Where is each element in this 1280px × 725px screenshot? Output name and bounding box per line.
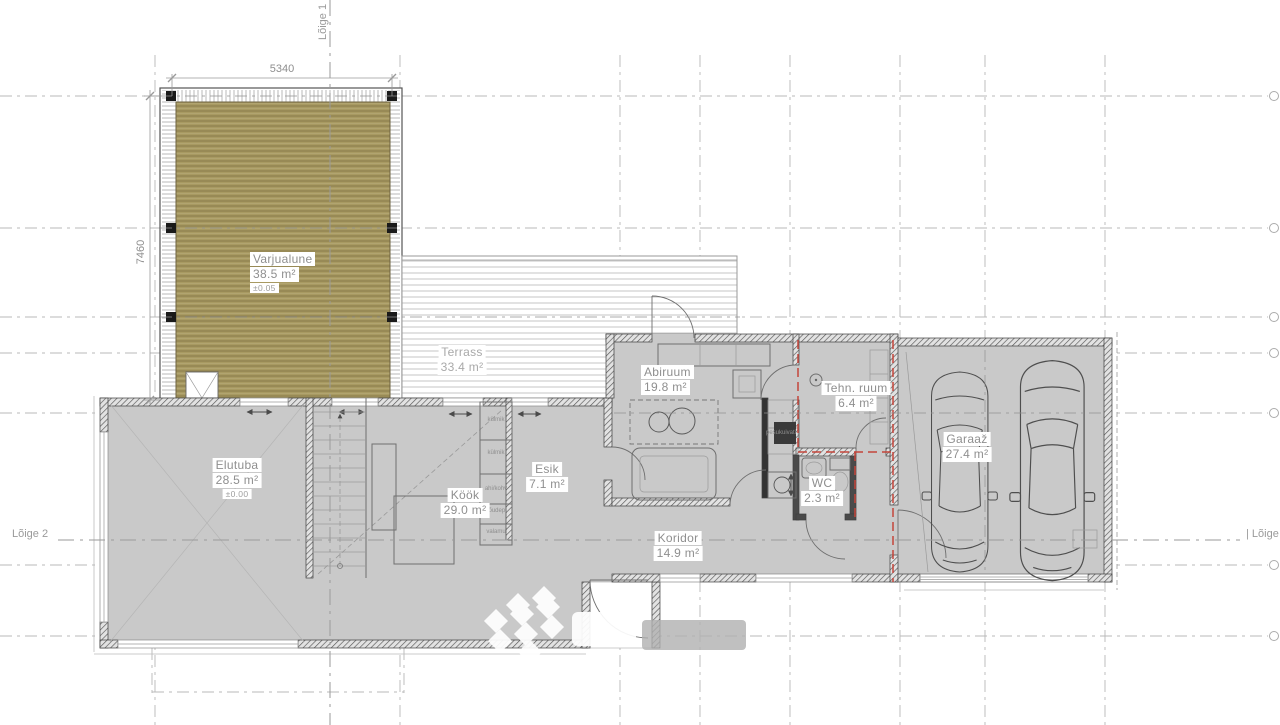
room-level: ±0.00: [223, 489, 252, 499]
room-area: 14.9 m²: [654, 546, 703, 560]
room-label-wc: WC 2.3 m²: [801, 476, 843, 506]
section-label-top: Lõige 1: [317, 4, 329, 40]
floor-plan-drawing: 5340 7460 Lõige 1 Lõige 2 | Lõige 2: [0, 0, 1280, 725]
room-area: 27.4 m²: [943, 447, 992, 461]
room-name: Abiruum: [641, 365, 694, 379]
wood-deck: [176, 102, 390, 398]
room-label-terrass: Terrass 33.4 m²: [438, 345, 487, 375]
garage-door: [920, 574, 1088, 582]
canopy-drain-box: [186, 372, 218, 398]
room-label-garaaz: Garaaž 27.4 m²: [943, 432, 992, 462]
room-label-elutuba: Elutuba 28.5 m² ±0.00: [213, 458, 262, 499]
room-name: Köök: [448, 488, 483, 502]
room-label-koridor: Koridor 14.9 m²: [654, 531, 703, 561]
room-label-kook: Köök 29.0 m²: [441, 488, 490, 518]
appliance-label-5: valamu: [486, 529, 505, 535]
room-name: Koridor: [655, 531, 702, 545]
dimension-width: 5340: [270, 63, 294, 75]
room-name: WC: [809, 476, 836, 490]
room-area: 28.5 m²: [213, 473, 262, 487]
room-label-esik: Esik 7.1 m²: [526, 462, 568, 492]
appliance-label-2: külmik: [487, 450, 504, 456]
laundry-label: pesukuivati: [766, 430, 796, 436]
section-label-right: | Lõige 2: [1246, 528, 1280, 540]
room-label-tehn-ruum: Tehn. ruum 6.4 m²: [821, 381, 890, 411]
canopy-varjualune: [160, 88, 402, 402]
room-name: Garaaž: [943, 432, 990, 446]
appliance-label-1: külmik: [487, 417, 504, 423]
room-name: Varjualune: [250, 252, 315, 266]
section-label-left: Lõige 2: [12, 528, 48, 540]
floor-plan-page: 5340 7460 Lõige 1 Lõige 2 | Lõige 2 Varj…: [0, 0, 1280, 725]
room-area: 2.3 m²: [801, 491, 843, 505]
room-area: 6.4 m²: [835, 396, 877, 410]
room-name: Esik: [532, 462, 562, 476]
room-label-abiruum: Abiruum 19.8 m²: [641, 365, 694, 395]
room-area: 29.0 m²: [441, 503, 490, 517]
room-name: Terrass: [438, 345, 485, 359]
room-area: 19.8 m²: [641, 380, 690, 394]
room-level: ±0.05: [250, 283, 279, 293]
grid-edge-markers: [1270, 92, 1279, 641]
room-label-varjualune: Varjualune 38.5 m² ±0.05: [250, 252, 315, 293]
room-area: 38.5 m²: [250, 267, 299, 281]
room-name: Elutuba: [213, 458, 262, 472]
room-area: 33.4 m²: [438, 360, 487, 374]
room-area: 7.1 m²: [526, 477, 568, 491]
dimension-height: 7460: [135, 240, 147, 264]
room-name: Tehn. ruum: [821, 381, 890, 395]
